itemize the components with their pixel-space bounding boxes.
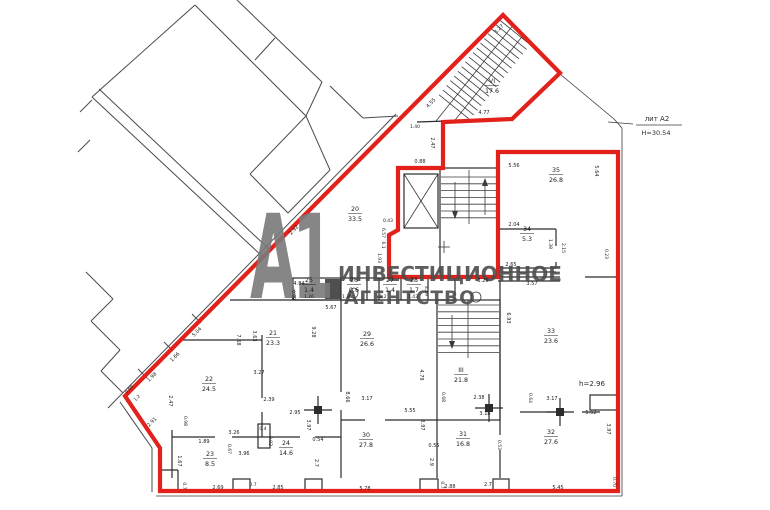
room-number-label: 23 [206, 451, 214, 458]
floor-plan-page: А1 ИНВЕСТИЦИОННОЕ АГЕНТСТВО VI17.62033.5… [0, 0, 770, 510]
room-area-label: 8.5 [205, 461, 215, 468]
dimension-label: 1.93 [376, 253, 382, 263]
dimension-label: 1.38 [342, 294, 352, 300]
room-area-label: 23.6 [544, 338, 558, 345]
dimension-label: 0.7 [439, 481, 445, 488]
room-number-label: 35 [552, 167, 560, 174]
room-number-label: 20 [351, 206, 359, 213]
dimension-label: 1.2 [379, 294, 386, 300]
dimension-label: 2.95 [289, 410, 300, 416]
dimension-label: 0.7 [181, 482, 187, 489]
dimension-label: 5.56 [508, 163, 519, 169]
dimension-label: 0.64 [527, 393, 533, 403]
annotation-labels-layer: лит А2H=30.54h=2.96 [579, 115, 670, 388]
room-number-label: VI [489, 78, 495, 85]
room-number-label: III [458, 367, 464, 374]
room-area-label: 17.6 [485, 88, 499, 95]
dimension-label: 0.55 [428, 443, 439, 449]
dimension-label: 5.55 [404, 408, 415, 414]
core-staircase [438, 168, 498, 276]
dimension-label: 5.45 [552, 485, 563, 491]
watermark-a1-logo: А1 [250, 190, 331, 326]
dimension-label: 2.91 [146, 416, 158, 428]
dimension-label: 0.7 [249, 482, 256, 488]
dimension-label: 1.40 [410, 124, 420, 130]
annotation-label: H=30.54 [642, 129, 671, 137]
dimension-label: 0.67 [226, 444, 232, 454]
dimension-label: 3.17 [361, 396, 372, 402]
room-area-label: 21.8 [454, 377, 468, 384]
dimension-label: 3.97 [605, 423, 611, 434]
room-number-label: 22 [205, 376, 213, 383]
dimension-label: 3.29 [477, 278, 488, 284]
dimension-label: 6.57 [380, 228, 386, 238]
dimension-label: 0.88 [414, 159, 425, 165]
dimension-label: 0.68 [440, 392, 446, 402]
dimension-label: 0.4 [259, 426, 266, 432]
room-area-label: 24.5 [202, 386, 216, 393]
dimension-label: 9.28 [310, 326, 316, 337]
dimension-label: 2.7 [313, 459, 319, 467]
dimension-label: 5.67 [325, 305, 336, 311]
stair-down-arrow-icon [449, 341, 455, 349]
old-building-outline [78, 0, 398, 492]
dimension-label: 2.65 [505, 262, 516, 268]
room-area-label: 26.8 [549, 177, 563, 184]
red-unit-outline [125, 15, 618, 491]
dimension-label: 3.57 [526, 281, 537, 287]
room-area-label: 1.7 [409, 287, 419, 294]
room-area-label: 16.8 [456, 441, 470, 448]
dimension-label: 0.43 [383, 218, 393, 224]
dimension-label: 4.84 [293, 281, 304, 287]
room-number-label: 21 [269, 330, 277, 337]
room-number-label: 29 [363, 331, 371, 338]
dimension-label: 2.69 [212, 485, 223, 491]
dimension-label: 3.96 [238, 451, 249, 457]
room-number-label: 31 [459, 431, 467, 438]
dimension-label: 3.27 [253, 370, 264, 376]
room-area-label: 23.3 [266, 340, 280, 347]
dimension-label: 2.9 [428, 458, 434, 466]
dimension-label: 1.26 [304, 294, 314, 300]
dimension-label: 2.15 [560, 243, 566, 253]
duct-niche [590, 395, 617, 410]
dimension-label: 4.55 [425, 97, 437, 109]
dimension-label: 7.68 [235, 334, 241, 345]
room-number-label: 32 [547, 429, 555, 436]
staircase-iii [437, 300, 500, 420]
dimension-label: 2.7 [484, 482, 492, 488]
dimension-label: 3.17 [546, 396, 557, 402]
elevator-shaft [404, 174, 438, 228]
dimension-label: 1.67 [176, 455, 182, 466]
floor-plan-drawing: А1 ИНВЕСТИЦИОННОЕ АГЕНТСТВО VI17.62033.5… [0, 0, 770, 510]
watermark: А1 ИНВЕСТИЦИОННОЕ АГЕНТСТВО [250, 190, 562, 326]
room-area-label: 0.6 [349, 287, 359, 294]
room-number-label: 25 [305, 277, 313, 284]
dimension-label: 3.16 [479, 411, 490, 417]
dimension-label: 0.54 [312, 437, 323, 443]
dimension-label: 0.98 [290, 290, 296, 300]
dimension-label: 0.23 [603, 249, 609, 259]
room-area-label: 27.6 [544, 439, 558, 446]
dimension-label: 2.47 [167, 395, 173, 406]
dimension-label: 6.93 [505, 312, 511, 323]
room-area-label: 26.6 [360, 341, 374, 348]
dimension-label: 5.64 [593, 165, 599, 176]
room-number-label: 28 [410, 277, 418, 284]
dimension-label: 5.78 [359, 486, 370, 492]
dimension-label: 2.04 [508, 222, 519, 228]
dimension-label: 3.97 [419, 419, 425, 430]
dimension-label: 1.38 [547, 239, 553, 249]
dimension-label: 2.88 [444, 484, 455, 490]
dimension-label: 1.66 [169, 351, 181, 363]
room-area-label: 1.4 [304, 287, 314, 294]
annotation-label: лит А2 [645, 115, 670, 123]
dimension-labels-layer: 3.274.554.771.402.470.882.920.436.576.11… [124, 23, 617, 492]
room-number-label: 33 [547, 328, 555, 335]
dimension-label: 2.47 [429, 137, 435, 148]
dimension-label: 6.1 [380, 241, 386, 248]
dimension-label: 1.2 [133, 394, 142, 403]
dimension-label: 5.52 [585, 410, 596, 416]
dimension-label: 4.79 [418, 369, 424, 380]
dimension-label: 1.43 [408, 294, 418, 300]
dimension-label: 1.89 [198, 439, 209, 445]
room-area-label: 27.8 [359, 442, 373, 449]
room-number-label: 34 [523, 226, 531, 233]
dimension-label: 8.66 [344, 391, 350, 402]
dimension-label: 0.92 [267, 436, 273, 446]
dimension-label: 2.39 [263, 397, 274, 403]
room-area-label: 1.4 [385, 287, 395, 294]
dimension-label: 0.98 [182, 416, 188, 426]
dimension-label: 2.38 [473, 395, 484, 401]
room-area-label: 5.3 [522, 236, 532, 243]
dimension-label: 3.63 [251, 330, 257, 341]
annotation-label: h=2.96 [579, 380, 605, 388]
room-area-label: 14.6 [279, 450, 293, 457]
dimension-label: 0.53 [496, 440, 502, 450]
dimension-label: 3.97 [305, 419, 311, 430]
room-area-label: 33.5 [348, 216, 362, 223]
dimension-label: 4.19 [423, 286, 429, 296]
dimension-label: 4.77 [478, 110, 489, 116]
dimension-label: 2.85 [272, 485, 283, 491]
dimension-label: 3.26 [228, 430, 239, 436]
room-number-label: 30 [362, 432, 370, 439]
dimension-label: 0.70 [611, 477, 617, 487]
room-number-label: 27 [386, 277, 394, 284]
room-number-label: 24 [282, 440, 290, 447]
stair-up-arrow-icon [482, 178, 488, 186]
room-number-label: 26 [350, 277, 358, 284]
